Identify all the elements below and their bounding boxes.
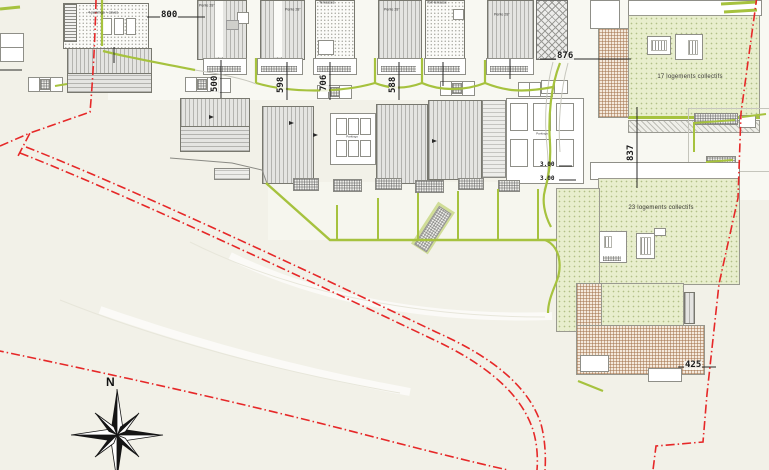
- north-label: N: [106, 375, 115, 389]
- parking-stall: [360, 140, 371, 157]
- block-23-label: 23 logements collectifs: [600, 205, 722, 211]
- paved-court: [598, 28, 630, 118]
- stair-treads: [651, 40, 667, 51]
- terrace-paving: [261, 66, 297, 72]
- dimension-label-425: 425: [684, 361, 702, 370]
- site-plan: 4 parkings + caves Pente 28° Pente 28° P…: [0, 0, 769, 470]
- dimension-label-837: 837: [627, 144, 636, 162]
- annex-roof: [214, 168, 250, 180]
- plot-box: [0, 33, 24, 48]
- parking-stall: [510, 139, 528, 167]
- parking-strip: [684, 292, 695, 324]
- dimension-label-598: 598: [277, 76, 286, 94]
- terrace-paving: [207, 66, 241, 72]
- terrace-notch: [648, 368, 682, 382]
- stair-treads: [604, 236, 612, 248]
- garden-terrace-pad: [333, 179, 362, 192]
- garden-terrace-pad: [458, 178, 484, 190]
- parking-stall: [114, 18, 124, 35]
- paved-stall: [452, 83, 462, 94]
- slope-label: Pente 28°: [494, 13, 510, 17]
- terrace-paving: [490, 66, 528, 72]
- dimension-label-588: 588: [389, 76, 398, 94]
- roof-detail: [654, 228, 666, 236]
- house-roof: [376, 104, 428, 184]
- parking-stall: [739, 115, 756, 128]
- dimension-label-500: 500: [211, 75, 220, 93]
- parking-strip: [694, 113, 738, 125]
- block-23-roof-garden: [600, 283, 684, 327]
- slope-label: Pente 28°: [285, 8, 301, 12]
- slope-arrow-icon: [289, 121, 294, 125]
- parking-stall: [462, 81, 475, 96]
- building-edge: [628, 0, 762, 16]
- parking-stall: [336, 118, 347, 135]
- roof-detail: [226, 20, 239, 30]
- house-roof: [487, 0, 534, 60]
- terrain-paths: [60, 242, 552, 393]
- parking-stall: [339, 85, 352, 99]
- parking-stall: [102, 18, 112, 35]
- stair-treads: [688, 40, 698, 55]
- terrace-paving: [603, 256, 621, 261]
- terrace-paving: [381, 66, 416, 72]
- roof-gap: [215, 1, 223, 57]
- terrace-notch: [580, 355, 609, 372]
- setback-label-300: 3.00: [540, 162, 554, 168]
- parking-stall: [510, 103, 528, 131]
- stairwell-icon: [636, 233, 655, 259]
- plot-box: [0, 47, 24, 62]
- stair-treads: [640, 237, 651, 255]
- paved-stall: [330, 87, 340, 97]
- slope-arrow-icon: [313, 133, 318, 137]
- setback-label-300: 3.00: [540, 176, 554, 182]
- parking-stall: [336, 140, 347, 157]
- dimension-label-706: 706: [320, 74, 329, 92]
- roof-access-box: [318, 40, 334, 55]
- house-roof: [262, 106, 314, 184]
- terrace-paving: [428, 66, 460, 72]
- dimension-label-800: 800: [160, 11, 178, 20]
- garden-terrace-pad: [293, 178, 319, 191]
- parking-stall: [360, 118, 371, 135]
- stairwell-icon: [647, 36, 671, 55]
- building-edge: [590, 0, 620, 29]
- parking-label: Parkings: [527, 133, 557, 136]
- roof-gap: [274, 1, 282, 57]
- garden-terrace-pad: [415, 180, 444, 193]
- parking-stall: [556, 103, 574, 131]
- parking-stall: [50, 77, 63, 92]
- garden-terrace-pad: [498, 180, 520, 192]
- parking-stall: [126, 18, 136, 35]
- slope-arrow-icon: [432, 139, 437, 143]
- paved-stall: [40, 79, 50, 90]
- block-17-label: 17 logements collectifs: [630, 74, 750, 80]
- parking-stall: [541, 80, 555, 94]
- parking-label: Parkings: [343, 136, 362, 139]
- garage-label: 4 parkings + caves: [88, 11, 118, 15]
- parking-stall: [348, 140, 359, 157]
- parking-stall: [533, 103, 551, 131]
- stair-strip: [64, 4, 77, 42]
- annex-roof: [482, 100, 506, 178]
- compass-rose-icon: [71, 389, 163, 470]
- paved-stall: [197, 79, 207, 90]
- terrace-label: Terrasses: [319, 1, 335, 5]
- roof-access-box: [453, 9, 464, 20]
- terrace-paving: [317, 66, 351, 72]
- house-roof: [180, 126, 250, 152]
- house-roof: [67, 48, 152, 75]
- garden-terrace-pad: [375, 178, 402, 190]
- slope-label: Pente 28°: [199, 4, 215, 8]
- parking-stall: [554, 80, 568, 94]
- house-roof: [180, 98, 250, 128]
- block-17-roof-garden: [628, 15, 760, 119]
- parking-stall: [348, 118, 359, 135]
- flat-roof-label: Toit-terrasse: [427, 1, 447, 5]
- stairwell-icon: [675, 34, 703, 60]
- dimension-label-876: 876: [556, 52, 574, 61]
- house-roof: [67, 73, 152, 93]
- slope-arrow-icon: [209, 115, 214, 119]
- parking-stall: [556, 139, 574, 167]
- slope-label: Pente 28°: [384, 8, 400, 12]
